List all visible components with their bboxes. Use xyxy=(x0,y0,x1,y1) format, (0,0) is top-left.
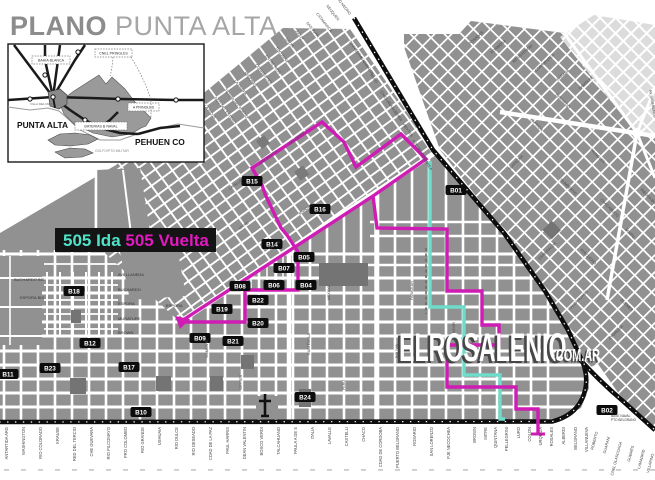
svg-text:B07: B07 xyxy=(278,266,290,273)
svg-text:CDAD DE CORDOBA: CDAD DE CORDOBA xyxy=(378,427,383,468)
svg-text:CNEL PRINGLES: CNEL PRINGLES xyxy=(99,52,128,56)
svg-text:GUATEMALA: GUATEMALA xyxy=(307,332,311,355)
svg-text:ESPORA: ESPORA xyxy=(166,303,183,308)
svg-text:CHE GUEVARA: CHE GUEVARA xyxy=(89,427,94,457)
svg-text:ROSARIO: ROSARIO xyxy=(412,427,417,446)
svg-text:B11: B11 xyxy=(2,372,14,379)
svg-text:B08: B08 xyxy=(234,284,246,291)
svg-text:MITRE: MITRE xyxy=(483,427,488,440)
svg-text:PEHUEN CO: PEHUEN CO xyxy=(135,137,185,147)
svg-text:MURATURE: MURATURE xyxy=(118,316,141,321)
svg-text:ITALIA: ITALIA xyxy=(310,427,315,439)
svg-text:BELGRANO: BELGRANO xyxy=(573,427,578,450)
svg-text:BROWN: BROWN xyxy=(118,330,133,335)
svg-text:KRAUSE: KRAUSE xyxy=(55,427,60,444)
svg-text:TALCAHUANO: TALCAHUANO xyxy=(276,427,281,455)
svg-text:VILLA DEL MAR: VILLA DEL MAR xyxy=(30,102,53,106)
svg-text:B19: B19 xyxy=(216,307,228,314)
svg-text:DEAN VALENTIN: DEAN VALENTIN xyxy=(242,427,247,459)
svg-text:B23: B23 xyxy=(44,366,56,373)
svg-text:COLON: COLON xyxy=(527,427,532,442)
svg-text:RIO COLORADO: RIO COLORADO xyxy=(38,427,43,459)
svg-text:BROWN: BROWN xyxy=(472,427,477,443)
svg-text:URQUIZA: URQUIZA xyxy=(538,427,543,446)
svg-text:ALBERDI: ALBERDI xyxy=(561,427,566,445)
svg-text:RIO DESEADO: RIO DESEADO xyxy=(191,427,196,455)
svg-text:B12: B12 xyxy=(84,341,96,348)
svg-text:PARAGUAY: PARAGUAY xyxy=(410,280,414,300)
svg-text:BAHIA BLANCA: BAHIA BLANCA xyxy=(38,59,65,63)
svg-text:PAUL HARRIS: PAUL HARRIS xyxy=(225,427,230,454)
svg-text:RIO GRANDE: RIO GRANDE xyxy=(140,427,145,453)
svg-text:RED DEL TERCIO: RED DEL TERCIO xyxy=(72,427,77,461)
svg-text:CHACO: CHACO xyxy=(361,427,366,442)
svg-text:ROSALES: ROSALES xyxy=(549,427,554,447)
svg-text:LURO: LURO xyxy=(516,427,521,438)
svg-text:B21: B21 xyxy=(227,339,239,346)
svg-text:B17: B17 xyxy=(123,365,135,372)
svg-text:A PRINGLES: A PRINGLES xyxy=(133,106,155,110)
svg-text:BUCHARDO BIS: BUCHARDO BIS xyxy=(14,277,45,282)
svg-text:B04: B04 xyxy=(300,283,312,290)
svg-text:LAVALLE: LAVALLE xyxy=(327,427,332,444)
svg-text:CDAD DE LA PAZ: CDAD DE LA PAZ xyxy=(208,427,213,461)
svg-text:PERU: PERU xyxy=(342,380,346,390)
svg-text:B01: B01 xyxy=(450,188,462,195)
svg-text:B16: B16 xyxy=(314,207,326,214)
svg-text:B22: B22 xyxy=(252,298,264,305)
svg-text:PELLEGRINI: PELLEGRINI xyxy=(504,427,509,451)
svg-text:VIAMONTE: VIAMONTE xyxy=(205,339,209,358)
svg-text:RIO DULCE: RIO DULCE xyxy=(174,427,179,450)
svg-text:PJE NECOCHEA: PJE NECOCHEA xyxy=(446,427,451,459)
svg-text:PTO BELGRANO: PTO BELGRANO xyxy=(611,418,637,422)
svg-text:B10: B10 xyxy=(135,410,147,417)
svg-text:PUERTO BELGRANO: PUERTO BELGRANO xyxy=(395,427,400,468)
svg-text:505 Ida 505 Vuelta: 505 Ida 505 Vuelta xyxy=(63,231,209,250)
svg-text:ESPORA: ESPORA xyxy=(118,301,135,306)
svg-text:B20: B20 xyxy=(252,321,264,328)
svg-text:USHUAIA: USHUAIA xyxy=(157,427,162,445)
svg-text:AVELLANEDA: AVELLANEDA xyxy=(118,272,144,277)
svg-text:PUNTA ALTA: PUNTA ALTA xyxy=(17,120,68,130)
svg-text:WASHINGTON: WASHINGTON xyxy=(21,427,26,455)
svg-text:.COM.AR: .COM.AR xyxy=(553,347,600,366)
svg-text:QUINTANA: QUINTANA xyxy=(493,427,498,448)
svg-text:MEXICO: MEXICO xyxy=(327,286,331,300)
svg-text:B15: B15 xyxy=(246,179,258,186)
svg-text:BOSCO VERDI: BOSCO VERDI xyxy=(259,427,264,455)
svg-text:BATERIAS B NAVAL: BATERIAS B NAVAL xyxy=(84,125,117,129)
svg-text:ELROSALENIO: ELROSALENIO xyxy=(399,324,567,369)
svg-text:ANTARTIDA ARG: ANTARTIDA ARG xyxy=(4,427,9,459)
svg-text:SAN LORENZO: SAN LORENZO xyxy=(429,427,434,456)
svg-text:PRO COLOMBO: PRO COLOMBO xyxy=(123,427,128,458)
svg-text:B24: B24 xyxy=(299,395,311,402)
svg-text:VILLANUEVA: VILLANUEVA xyxy=(584,427,589,452)
svg-text:PAULA A DE S: PAULA A DE S xyxy=(293,427,298,454)
svg-text:CASTELLI: CASTELLI xyxy=(344,427,349,446)
svg-text:GOLFO/PTO MILITAR: GOLFO/PTO MILITAR xyxy=(95,149,129,153)
svg-text:B05: B05 xyxy=(298,255,310,262)
svg-text:ESPORA BIS: ESPORA BIS xyxy=(20,295,44,300)
svg-text:VIEYTES: VIEYTES xyxy=(239,374,243,390)
svg-text:PLANO PUNTA ALTA: PLANO PUNTA ALTA xyxy=(10,11,278,41)
svg-text:RIO PILCOMAYO: RIO PILCOMAYO xyxy=(106,427,111,459)
svg-text:B06: B06 xyxy=(268,283,280,290)
svg-text:B18: B18 xyxy=(68,289,80,296)
svg-text:BUCHARDO: BUCHARDO xyxy=(118,287,141,292)
